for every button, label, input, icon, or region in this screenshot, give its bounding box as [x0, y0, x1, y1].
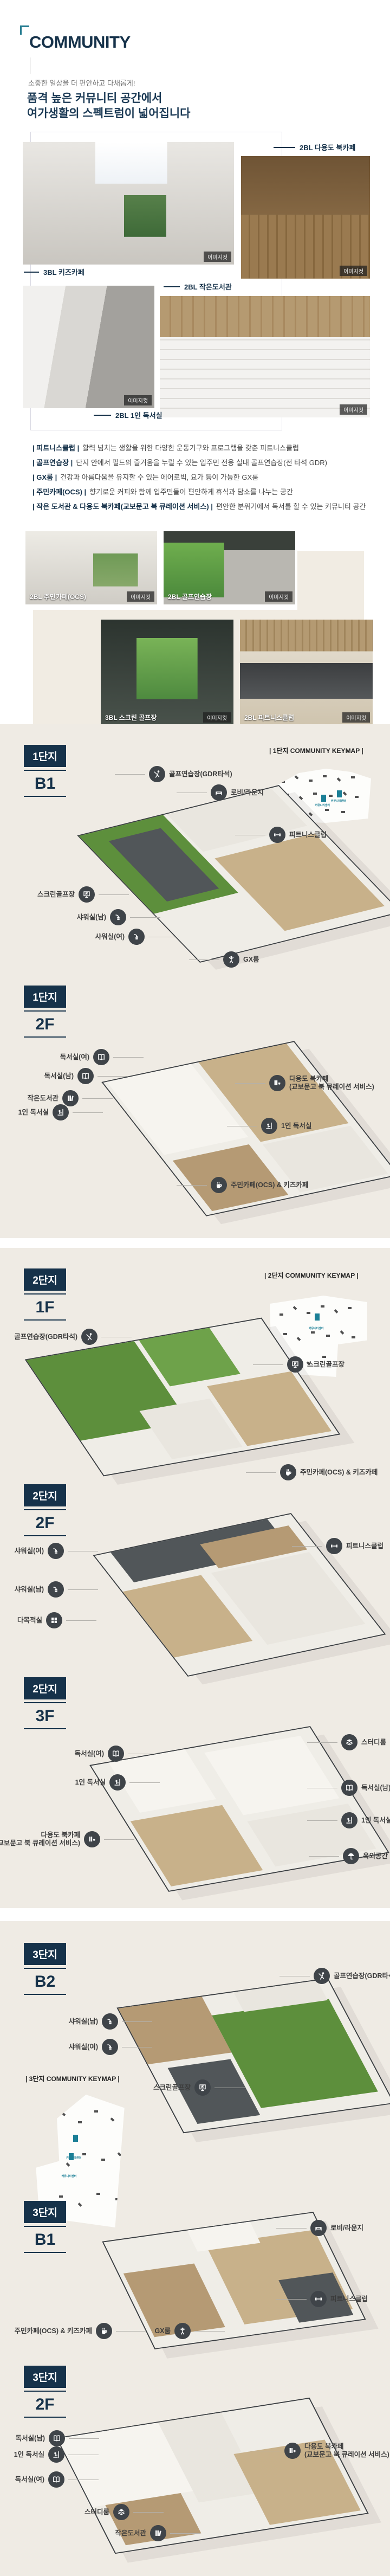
plan-callout: 주민카페(OCS) & 키즈카페 — [246, 1464, 378, 1480]
callout-line — [227, 1126, 257, 1126]
callout-label: 독서실(남) — [361, 1784, 390, 1792]
keymap-community-center-label: 커뮤니티센터 — [309, 1326, 324, 1330]
callout-line — [128, 1754, 158, 1754]
plan-callout: 주민카페(OCS) & 키즈카페 — [177, 1177, 308, 1193]
caption-text: 2BL 1인 독서실 — [115, 410, 162, 420]
complex-name: 2단지 — [24, 1677, 66, 1699]
callout-line — [276, 2228, 307, 2229]
callout-text: 주민카페(OCS) & 키즈카페 — [300, 1469, 378, 1476]
plan-callout: 샤워실(남) — [15, 1581, 98, 1598]
callout-text: 1인 독서실 — [281, 1122, 311, 1130]
complex-name: 1단지 — [24, 745, 66, 767]
cafe-icon — [211, 1177, 227, 1193]
feature-item: | GX룸 |건강과 아름다움을 유지할 수 있는 에어로빅, 요가 등이 가능… — [32, 472, 366, 486]
keymap-building — [307, 1312, 310, 1314]
callout-text: 작은도서관 — [115, 2529, 146, 2537]
gx-icon — [223, 951, 239, 968]
fitness-icon — [269, 827, 285, 843]
keymap-building — [298, 796, 303, 800]
callout-label: 스크린골프장 — [153, 2084, 191, 2092]
callout-line — [122, 2047, 152, 2047]
callout-label: 작은도서관 — [115, 2529, 146, 2538]
keymap-building — [101, 2159, 105, 2161]
callout-line — [122, 2021, 152, 2022]
callout-text: 스크린골프장 — [153, 2084, 191, 2091]
keymap-building — [348, 1307, 352, 1309]
badge-line — [24, 1036, 66, 1038]
screen-golf-icon — [194, 2079, 211, 2096]
study-icon — [341, 1734, 357, 1750]
plan-callout: 샤워실(여) — [95, 929, 179, 945]
complex-name: 2단지 — [24, 1268, 66, 1291]
keymap-building — [329, 795, 333, 797]
feature-desc: 건강과 아름다움을 유지할 수 있는 에어로빅, 요가 등이 가능한 GX룸 — [60, 472, 258, 482]
screen-golf-icon — [287, 1356, 303, 1373]
keymap-community-center-mark — [315, 1313, 320, 1321]
callout-text: 독서실(여) — [75, 1750, 104, 1757]
imagecut-badge: 이미지컷 — [265, 591, 292, 602]
feature-item: | 주민카페(OCS) |향기로운 커피와 함께 입주민들이 편안하게 휴식과 … — [32, 486, 366, 501]
plan-callout: 샤워실(여) — [15, 1543, 98, 1559]
plan-callout: 1인 독서실 — [227, 1118, 311, 1134]
callout-label: 샤워실(남) — [15, 1586, 44, 1594]
keymap-building — [334, 1309, 338, 1313]
plan-callout: 스크린골프장 — [37, 886, 129, 903]
floor-name: 1F — [24, 1298, 66, 1317]
imagecut-badge: 이미지컷 — [204, 252, 231, 262]
callout-label: 피트니스클럽 — [289, 831, 327, 839]
corner-bracket-icon — [20, 25, 29, 35]
badge-line — [24, 796, 66, 797]
single-reading-icon — [109, 1774, 126, 1791]
callout-line — [68, 1551, 98, 1551]
callout-line — [115, 774, 145, 775]
keymap-building — [341, 811, 345, 813]
callout-line — [97, 1076, 128, 1077]
badge-line — [24, 1994, 66, 1995]
callout-text: 1인 독서실 — [361, 1817, 390, 1824]
keymap-building — [351, 776, 355, 778]
plan-callout: 독서실(여) — [60, 1049, 144, 1065]
heading-line2: 여가생활의 스펙트럼이 넓어집니다 — [27, 107, 190, 120]
callout-label: 스크린골프장 — [307, 1361, 344, 1369]
caption-line — [164, 286, 180, 287]
callout-label: 샤워실(여) — [95, 933, 125, 941]
callout-label: 독서실(남) — [44, 1072, 74, 1080]
plan-callout: GX룸 — [189, 951, 259, 968]
golf-icon — [314, 1968, 330, 1984]
callout-label: 1인 독서실 — [18, 1109, 49, 1117]
callout-text: 독서실(여) — [60, 1053, 89, 1061]
callout-text: 스터디룸 — [361, 1738, 386, 1746]
floor-badge: 2단지1F — [24, 1268, 66, 1321]
badge-line — [24, 1010, 66, 1012]
page-subtitle: 소중한 일상을 더 편안하고 다채롭게! — [28, 78, 135, 88]
callout-label: 옥외공간 — [363, 1852, 388, 1860]
keymap-building — [295, 775, 299, 780]
callout-text: 주민카페(OCS) & 키즈카페 — [15, 2327, 92, 2335]
deco-beige-block — [297, 551, 364, 611]
callout-text: 골프연습장(GDR타석) — [169, 770, 232, 778]
keymap-community-center-mark — [321, 795, 326, 802]
callout-line — [292, 1546, 322, 1547]
badge-line — [24, 1968, 66, 1969]
golf-icon — [81, 1329, 97, 1345]
photo-caption: 2BL 골프연습장 — [168, 592, 212, 601]
photo-bookcafe: 이미지컷 — [241, 156, 370, 279]
plan-callout: 피트니스클럽 — [235, 827, 327, 843]
callout-label: 골프연습장(GDR타석) — [14, 1333, 77, 1341]
callout-line — [214, 2088, 245, 2088]
keymap-community-center-mark — [337, 790, 342, 797]
callout-text: 다목적실 — [17, 1617, 42, 1624]
shower-icon — [128, 929, 145, 945]
reading-room-icon — [93, 1049, 109, 1065]
cafe-icon — [96, 2323, 112, 2339]
keymap-building — [343, 791, 347, 796]
reading-room-icon — [49, 2430, 65, 2446]
caption-bookcafe: 2BL 다용도 북카페 — [274, 142, 355, 152]
callout-label: 독서실(여) — [15, 2476, 44, 2484]
library-icon — [150, 2525, 166, 2541]
callout-text: 로비/라운지 — [330, 2224, 363, 2232]
callout-label: 다용도 북카페(교보문고 북 큐레이션 서비스) — [289, 1075, 374, 1091]
plan-callout: 스터디룸 — [307, 1734, 386, 1750]
plan-callout: 골프연습장(GDR타석) — [14, 1329, 132, 1345]
callout-text2: (교보문고 북 큐레이션 서비스) — [0, 1839, 80, 1847]
keymap-title: | 2단지 COMMUNITY KEYMAP | — [264, 1271, 359, 1280]
book-cafe-icon — [269, 1075, 285, 1091]
callout-text: 샤워실(남) — [15, 1586, 44, 1593]
callout-line — [246, 1472, 276, 1473]
plan-callout: 로비/라운지 — [276, 2220, 363, 2236]
callout-text: GX룸 — [243, 956, 259, 963]
page-title: COMMUNITY — [29, 33, 131, 52]
feature-name: | 골프연습장 | — [32, 457, 73, 467]
feature-name: | 주민카페(OCS) | — [32, 486, 86, 497]
book-cafe-icon — [84, 1831, 100, 1847]
callout-text: 골프연습장(GDR타석) — [334, 1972, 390, 1980]
shower-icon — [102, 2013, 118, 2030]
keymap-building — [110, 2117, 115, 2122]
callout-label: 1인 독서실 — [281, 1122, 311, 1130]
outdoor-icon — [343, 1848, 359, 1864]
shower-icon — [102, 2039, 118, 2055]
keymap-building — [279, 1313, 283, 1316]
plan-callout: 다목적실 — [17, 1612, 96, 1628]
callout-line — [129, 1782, 160, 1783]
badge-line — [24, 2417, 66, 2418]
callout-text: 독서실(남) — [16, 2435, 45, 2442]
plan-callout: 피트니스클럽 — [292, 1538, 383, 1554]
feature-name: | GX룸 | — [32, 472, 57, 482]
callout-text: 샤워실(남) — [69, 2018, 98, 2025]
photo-kids-cafe: 이미지컷 — [23, 142, 234, 265]
callout-label: 주민카페(OCS) & 키즈카페 — [231, 1181, 308, 1189]
caption-text: 2BL 작은도서관 — [184, 281, 232, 292]
imagecut-badge: 이미지컷 — [124, 395, 152, 405]
callout-text: 옥외공간 — [363, 1852, 388, 1860]
plan-callout: 다용도 북카페(교보문고 북 큐레이션 서비스) — [0, 1831, 134, 1847]
callout-label: 1인 독서실 — [361, 1817, 390, 1825]
callout-text: 다용도 북카페 — [41, 1831, 80, 1839]
callout-line — [68, 2480, 99, 2480]
complex-name: 3단지 — [24, 2201, 66, 2223]
plan-callout: 골프연습장(GDR타석) — [115, 766, 232, 782]
callout-line — [189, 959, 219, 960]
feature-list: | 피트니스클럽 |활력 넘치는 생활을 위한 다양한 운동기구와 프로그램을 … — [32, 442, 366, 516]
callout-text: 독서실(여) — [15, 2476, 44, 2483]
callout-text: 피트니스클럽 — [330, 2295, 368, 2303]
screen-golf-icon — [79, 886, 95, 903]
callout-line — [307, 1820, 337, 1821]
feature-name: | 작은 도서관 & 다용도 북카페(교보문고 북 큐레이션 서비스) | — [32, 501, 213, 511]
callout-line — [307, 1742, 337, 1743]
callout-line — [130, 917, 160, 918]
multipurpose-icon — [46, 1612, 62, 1628]
callout-label: 골프연습장(GDR타석) — [334, 1972, 390, 1980]
imagecut-badge: 이미지컷 — [340, 404, 367, 415]
callout-text: 작은도서관 — [27, 1094, 58, 1102]
callout-label: 스터디룸 — [361, 1738, 386, 1747]
caption-line — [94, 415, 111, 416]
caption-kids-cafe: 3BL 키즈카페 — [24, 267, 84, 277]
callout-line — [66, 1620, 96, 1621]
caption-text: 2BL 다용도 북카페 — [300, 142, 355, 152]
callout-line — [177, 1185, 207, 1186]
callout-line — [276, 2299, 307, 2300]
caption-single-reading: 2BL 1인 독서실 — [94, 410, 162, 420]
badge-line — [24, 2391, 66, 2392]
caption-line — [274, 147, 295, 148]
caption-library: 2BL 작은도서관 — [164, 281, 232, 292]
callout-label: 1인 독서실 — [75, 1779, 106, 1787]
fitness-icon — [326, 1538, 342, 1554]
shower-icon — [48, 1543, 64, 1559]
callout-label: 독서실(여) — [60, 1053, 89, 1061]
callout-label: 다용도 북카페(교보문고 북 큐레이션 서비스) — [0, 1831, 80, 1847]
plan-callout: 독서실(여) — [75, 1746, 158, 1762]
complex-name: 3단지 — [24, 1943, 66, 1965]
feature-item: | 피트니스클럽 |활력 넘치는 생활을 위한 다양한 운동기구와 프로그램을 … — [32, 442, 366, 457]
floor-name: B2 — [24, 1973, 66, 1991]
keymap-building — [325, 809, 329, 811]
keymap-title: | 3단지 COMMUNITY KEYMAP | — [25, 2074, 120, 2083]
callout-label: GX룸 — [243, 956, 259, 964]
caption-text: 3BL 키즈카페 — [43, 267, 84, 277]
callout-label: 스크린골프장 — [37, 891, 75, 899]
shower-icon — [110, 909, 126, 925]
callout-label: 다용도 북카페(교보문고 북 큐레이션 서비스) — [304, 2443, 389, 2459]
imagecut-badge: 이미지컷 — [203, 712, 231, 723]
callout-label: 로비/라운지 — [330, 2224, 363, 2232]
plan-callout: 독서실(여) — [15, 2471, 99, 2488]
callout-text: 로비/라운지 — [231, 789, 264, 796]
callout-text: 1인 독서실 — [75, 1779, 106, 1786]
photo-screen-golf: 3BL 스크린 골프장 이미지컷 — [101, 620, 233, 725]
callout-line — [148, 937, 179, 937]
plan-callout: 1인 독서실 — [14, 2446, 99, 2463]
callout-label: 피트니스클럽 — [330, 2295, 368, 2303]
floor-badge: 2단지2F — [24, 1484, 66, 1536]
badge-line — [24, 1535, 66, 1536]
callout-label: 1인 독서실 — [14, 2451, 44, 2459]
feature-item: | 작은 도서관 & 다용도 북카페(교보문고 북 큐레이션 서비스) |편안한… — [32, 501, 366, 516]
plan-callout: 독서실(남) — [44, 1068, 128, 1084]
plan-callout: 1인 독서실 — [18, 1104, 103, 1120]
reading-room-icon — [77, 1068, 94, 1084]
badge-line — [24, 1728, 66, 1729]
photo-caption: 2BL 주민카페(OCS) — [30, 592, 86, 601]
callout-text: 독서실(남) — [44, 1072, 74, 1080]
plan-callout: 주민카페(OCS) & 키즈카페 — [15, 2323, 146, 2339]
callout-label: 독서실(남) — [16, 2435, 45, 2443]
callout-text: 스크린골프장 — [37, 891, 75, 898]
badge-line — [24, 1319, 66, 1321]
keymap-building — [309, 780, 313, 782]
badge-line — [24, 770, 66, 771]
callout-label: 로비/라운지 — [231, 789, 264, 797]
callout-line — [253, 1364, 283, 1365]
complex-name: 1단지 — [24, 986, 66, 1008]
keymap-building — [283, 1333, 287, 1335]
callout-line — [250, 2451, 281, 2451]
keymap-building — [82, 2153, 86, 2155]
callout-line — [68, 1589, 98, 1590]
gx-icon — [174, 2323, 191, 2339]
plan-callout: 작은도서관 — [115, 2525, 200, 2541]
callout-line — [170, 2533, 200, 2534]
callout-line — [101, 1337, 132, 1337]
plan-callout: 독서실(남) — [307, 1780, 390, 1796]
keymap-building — [309, 812, 313, 816]
study-icon — [113, 2504, 129, 2520]
photo-resident-cafe: 2BL 주민카페(OCS) 이미지컷 — [25, 531, 157, 604]
complex-name: 3단지 — [24, 2366, 66, 2388]
floor-name: B1 — [24, 2231, 66, 2249]
keymap-building — [313, 793, 317, 795]
keymap-building — [311, 1331, 315, 1334]
callout-line — [68, 2455, 99, 2455]
floor-badge: 3단지B1 — [24, 2201, 66, 2253]
plan-callout: 다용도 북카페(교보문고 북 큐레이션 서비스) — [235, 1075, 374, 1091]
callout-line — [104, 1839, 134, 1840]
photo-reading-corridor: 이미지컷 — [23, 286, 154, 408]
keymap-building — [352, 1336, 355, 1338]
floor-name: B1 — [24, 775, 66, 793]
floor-name: 2F — [24, 2395, 66, 2414]
keymap-building — [59, 2195, 63, 2198]
floor-badge: 3단지B2 — [24, 1943, 66, 1995]
keymap-building — [78, 2121, 82, 2123]
plan-callout: 피트니스클럽 — [276, 2291, 368, 2307]
page-heading: 품격 높은 커뮤니티 공간에서 여가생활의 스펙트럼이 넓어집니다 — [27, 91, 190, 121]
plan-callout: 다용도 북카페(교보문고 북 큐레이션 서비스) — [250, 2443, 389, 2459]
imagecut-badge: 이미지컷 — [340, 266, 367, 276]
callout-line — [279, 1976, 310, 1976]
keymap-building — [293, 1306, 297, 1310]
callout-text2: (교보문고 북 큐레이션 서비스) — [304, 2451, 389, 2459]
callout-label: 골프연습장(GDR타석) — [169, 770, 232, 778]
callout-line — [73, 1112, 103, 1113]
callout-text: 샤워실(여) — [69, 2043, 98, 2051]
single-reading-icon — [341, 1812, 357, 1828]
shower-icon — [48, 1581, 64, 1598]
photo-golf-range: 2BL 골프연습장 이미지컷 — [164, 531, 295, 604]
keymap-community-center-label: 커뮤니티센터 — [315, 803, 330, 807]
keymap-building — [337, 777, 341, 782]
callout-line — [82, 1098, 113, 1099]
feature-item: | 골프연습장 |단지 안에서 필드의 즐거움을 누릴 수 있는 입주민 전용 … — [32, 457, 366, 472]
callout-line — [113, 1057, 144, 1058]
callout-line — [194, 2331, 225, 2332]
callout-text: 다용도 북카페 — [289, 1075, 328, 1083]
callout-text: 피트니스클럽 — [346, 1542, 383, 1550]
feature-desc: 단지 안에서 필드의 즐거움을 누릴 수 있는 입주민 전용 실내 골프연습장(… — [76, 457, 327, 467]
callout-label: 다목적실 — [17, 1617, 42, 1625]
callout-line — [235, 835, 265, 835]
plan-callout: 스크린골프장 — [153, 2079, 245, 2096]
callout-text: 독서실(남) — [361, 1784, 390, 1792]
callout-line — [99, 894, 129, 895]
keymap-building — [77, 2203, 82, 2207]
plan-callout: 골프연습장(GDR타석) — [279, 1968, 390, 1984]
feature-desc: 향기로운 커피와 함께 입주민들이 편안하게 휴식과 담소를 나누는 공간 — [89, 486, 293, 497]
callout-text: 스크린골프장 — [307, 1361, 344, 1368]
reading-room-icon — [108, 1746, 124, 1762]
book-cafe-icon — [284, 2443, 301, 2459]
callout-label: 샤워실(남) — [69, 2018, 98, 2026]
callout-line — [177, 793, 207, 793]
floor-badge: 3단지2F — [24, 2366, 66, 2418]
badge-line — [24, 2226, 66, 2227]
keymap-building — [340, 1330, 344, 1335]
callout-text: 주민카페(OCS) & 키즈카페 — [231, 1181, 308, 1189]
callout-text: 스터디룸 — [84, 2508, 109, 2516]
keymap-building — [96, 2193, 100, 2195]
reading-room-icon — [341, 1780, 357, 1796]
callout-label: 주민카페(OCS) & 키즈카페 — [15, 2327, 92, 2335]
callout-label: 독서실(여) — [75, 1750, 104, 1758]
plan-callout: 스크린골프장 — [253, 1356, 344, 1373]
callout-text2: (교보문고 북 큐레이션 서비스) — [289, 1083, 374, 1091]
badge-line — [24, 1293, 66, 1295]
golf-icon — [149, 766, 165, 782]
callout-line — [116, 2331, 146, 2332]
plan-callout: GX룸 — [154, 2323, 225, 2339]
keymap-building — [326, 1335, 330, 1337]
floor-badge: 2단지3F — [24, 1677, 66, 1729]
photo-caption: 3BL 스크린 골프장 — [105, 713, 157, 722]
badge-line — [24, 2252, 66, 2253]
callout-label: 스터디룸 — [84, 2508, 109, 2516]
callout-text: 1인 독서실 — [14, 2451, 44, 2458]
reading-room-icon — [48, 2471, 64, 2488]
plan-callout: 샤워실(여) — [69, 2039, 152, 2055]
heading-line1: 품격 높은 커뮤니티 공간에서 — [27, 92, 162, 105]
community-page: COMMUNITY 소중한 일상을 더 편안하고 다채롭게! 품격 높은 커뮤니… — [0, 0, 390, 2576]
badge-line — [24, 1702, 66, 1703]
callout-text: 샤워실(여) — [15, 1547, 44, 1555]
callout-label: 샤워실(남) — [77, 913, 106, 922]
feature-name: | 피트니스클럽 | — [32, 442, 79, 453]
keymap-title: | 1단지 COMMUNITY KEYMAP | — [269, 746, 363, 755]
fitness-icon — [310, 2291, 327, 2307]
photo-library: 이미지컷 — [160, 296, 370, 417]
keymap-community-center-label: 커뮤니티센터 — [331, 799, 346, 803]
plan-callout: 1인 독서실 — [75, 1774, 160, 1791]
keymap-building — [321, 1305, 324, 1308]
